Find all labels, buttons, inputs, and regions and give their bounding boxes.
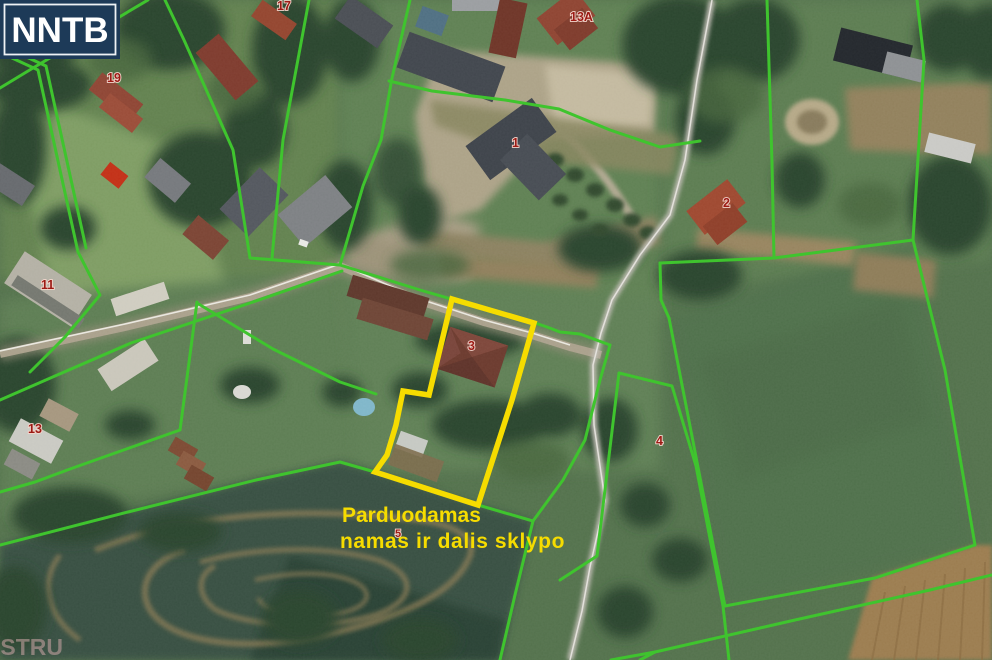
svg-text:19: 19 (107, 71, 121, 85)
svg-text:11: 11 (41, 278, 54, 292)
svg-text:13: 13 (28, 422, 42, 436)
svg-text:namas ir dalis sklypo: namas ir dalis sklypo (340, 530, 565, 553)
svg-text:NNTB: NNTB (11, 11, 108, 50)
svg-text:13A: 13A (570, 10, 593, 24)
svg-text:17: 17 (277, 0, 291, 13)
svg-text:2: 2 (723, 196, 730, 210)
svg-text:ISTRU: ISTRU (0, 634, 63, 660)
svg-text:3: 3 (468, 339, 475, 353)
svg-text:4: 4 (656, 434, 663, 448)
svg-text:Parduodamas: Parduodamas (342, 504, 481, 527)
svg-text:1: 1 (512, 136, 519, 150)
